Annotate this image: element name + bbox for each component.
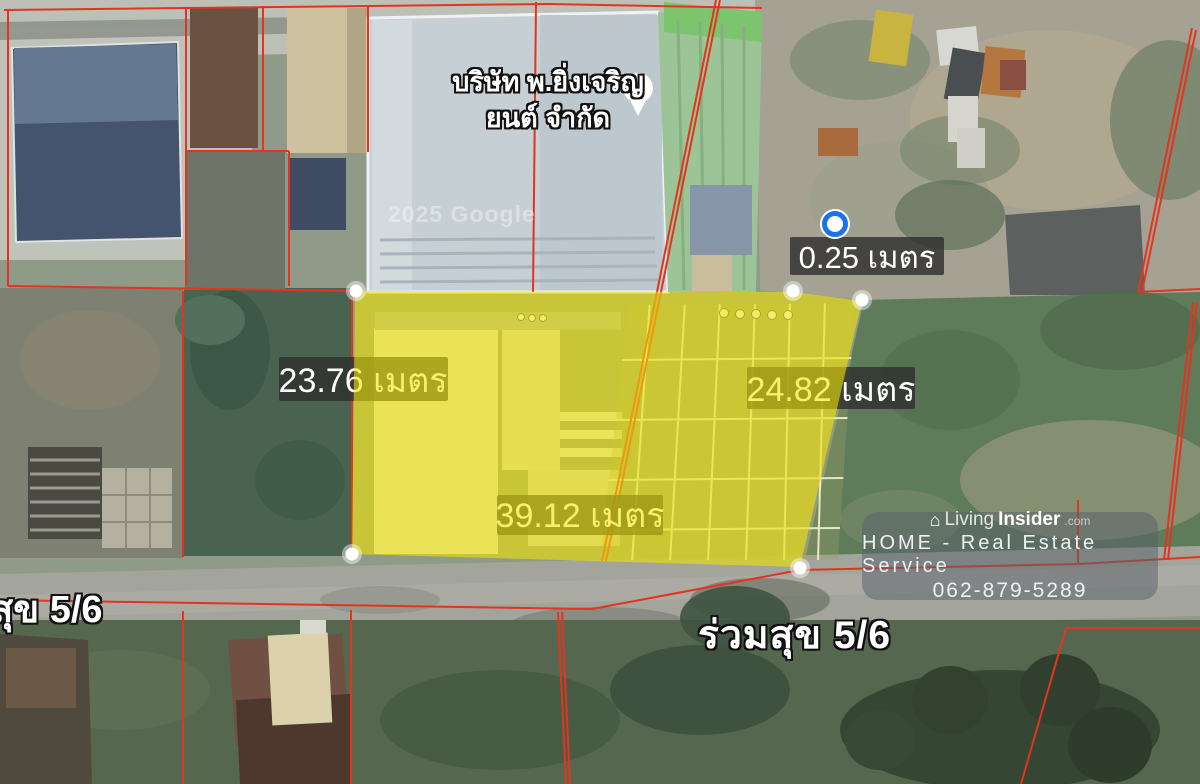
place-label[interactable]: บริษัท พ.ยิ่งเจริญ ยนต์ จำกัด: [428, 64, 668, 136]
svg-text:0.25 เมตร: 0.25 เมตร: [799, 240, 936, 275]
road-label-left: สุข 5/6: [0, 578, 103, 639]
measure-point-marker[interactable]: [821, 210, 849, 238]
plot-corner-marker[interactable]: [342, 544, 362, 564]
measurement-label-north: 0.25 เมตร: [790, 237, 944, 275]
house-icon: ⌂: [930, 510, 941, 531]
plot-corner-marker[interactable]: [852, 290, 872, 310]
watermark-brand-tld: .com: [1064, 514, 1090, 528]
watermark-brand-prefix: Living: [944, 509, 994, 531]
watermark-tagline: HOME - Real Estate Service: [862, 532, 1158, 578]
highlighted-plot-polygon: [352, 291, 862, 567]
watermark-phone: 062-879-5289: [933, 579, 1088, 603]
google-copyright: 2025 Google: [388, 201, 536, 228]
map-viewport[interactable]: 0.25 เมตร 23.76 เมตร 24.82 เมตร 39.12 เม…: [0, 0, 1200, 784]
plot-corner-marker[interactable]: [783, 281, 803, 301]
place-name-line2: ยนต์ จำกัด: [428, 100, 668, 136]
watermark-card: ⌂ Living Insider .com HOME - Real Estate…: [862, 512, 1158, 600]
road-label-main: ร่วมสุข 5/6: [698, 604, 891, 666]
plot-corner-marker[interactable]: [346, 281, 366, 301]
watermark-brand-suffix: Insider: [998, 509, 1060, 531]
place-name-line1: บริษัท พ.ยิ่งเจริญ: [428, 64, 668, 100]
plot-corner-marker[interactable]: [790, 558, 810, 578]
watermark-brand: ⌂ Living Insider .com: [930, 509, 1091, 531]
